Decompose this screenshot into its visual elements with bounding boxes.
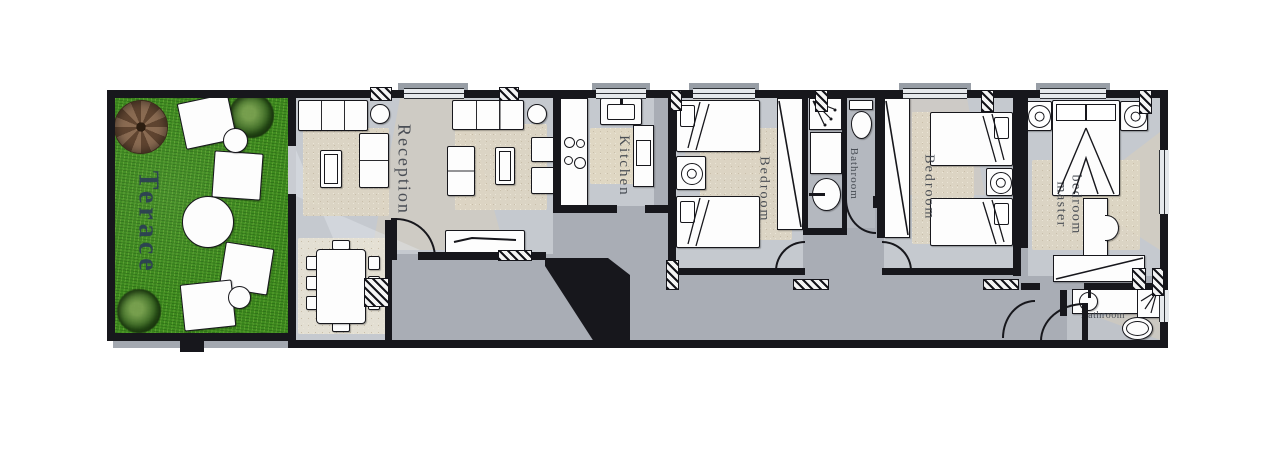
vanity-counter xyxy=(810,132,842,174)
column xyxy=(364,278,389,307)
dining-chair xyxy=(368,256,380,270)
wall-bedroom1-left xyxy=(668,98,676,276)
window xyxy=(693,88,755,99)
terrace-label: Terace xyxy=(133,138,162,308)
column xyxy=(499,87,519,101)
terrace-door-opening xyxy=(288,146,296,194)
terrace-chair xyxy=(211,150,263,200)
column xyxy=(1152,268,1164,296)
window xyxy=(596,88,646,99)
window xyxy=(903,88,967,99)
terrace-side-table xyxy=(228,286,251,309)
column xyxy=(983,279,1019,290)
wall-kitchen-bottom xyxy=(553,205,617,213)
twin-bed xyxy=(676,100,760,152)
lamp-icon xyxy=(990,172,1012,194)
kitchen-appliance xyxy=(633,125,654,187)
twin-bed xyxy=(930,198,1013,246)
floor-plan: Terace Reception xyxy=(0,0,1280,452)
side-table xyxy=(527,104,547,124)
wall-kitchen-left xyxy=(553,98,560,210)
window xyxy=(1040,88,1106,99)
window xyxy=(1159,150,1169,214)
wall-terrace-divider xyxy=(288,90,296,341)
reception-label: Reception xyxy=(395,104,414,234)
bedroom2-label: Bedroom xyxy=(921,147,936,227)
wall-corridor-top-a xyxy=(672,268,775,275)
master-bedroom-label: bedroom master xyxy=(1053,159,1082,251)
column xyxy=(370,87,392,101)
column xyxy=(498,250,532,261)
kitchen-label: Kitchen xyxy=(615,121,631,211)
wall-left xyxy=(107,90,115,341)
loveseat xyxy=(359,133,389,188)
side-table xyxy=(370,104,390,124)
wall-corridor-top-b xyxy=(912,268,1014,275)
column xyxy=(1139,90,1152,114)
wall-bathroom1-left xyxy=(803,98,808,235)
column xyxy=(793,279,829,290)
lamp-icon xyxy=(1028,105,1051,128)
wall-bedroom2-left xyxy=(877,98,884,238)
wall-master-left xyxy=(1021,98,1028,248)
column xyxy=(666,260,679,290)
twin-bed xyxy=(930,112,1013,166)
stove-icon xyxy=(562,135,587,173)
wall-bedroom2-right xyxy=(1013,98,1021,276)
toilet xyxy=(1122,317,1153,340)
sofa xyxy=(452,100,524,130)
master-label-line2: master xyxy=(1054,182,1069,228)
wall-master-bottom-stub xyxy=(1021,283,1040,290)
wall-notch xyxy=(180,341,204,352)
terrace-chair xyxy=(180,279,237,331)
column xyxy=(670,90,682,111)
column xyxy=(981,90,994,112)
dining-table xyxy=(316,249,366,324)
window xyxy=(404,88,464,99)
loveseat xyxy=(447,146,475,196)
terrace-side-table xyxy=(223,128,248,153)
coffee-table xyxy=(495,147,515,185)
wall-bathroom1-bottom xyxy=(803,228,847,235)
wall-bathroom2-top xyxy=(1084,283,1160,290)
sofa xyxy=(298,100,368,131)
master-label-line1: bedroom xyxy=(1069,175,1084,235)
wardrobe xyxy=(884,98,910,238)
bedroom1-label: Bedroom xyxy=(756,149,771,229)
lamp-icon xyxy=(681,163,703,185)
twin-bed xyxy=(676,196,760,248)
wall-bottom xyxy=(288,340,1168,348)
toilet-tank xyxy=(849,100,873,110)
column xyxy=(1132,268,1146,290)
sink xyxy=(812,178,841,211)
column xyxy=(815,90,828,112)
wardrobe xyxy=(777,98,803,230)
terrace-table xyxy=(182,196,234,248)
wall-terrace-bottom xyxy=(107,333,296,341)
coffee-table xyxy=(320,150,342,188)
